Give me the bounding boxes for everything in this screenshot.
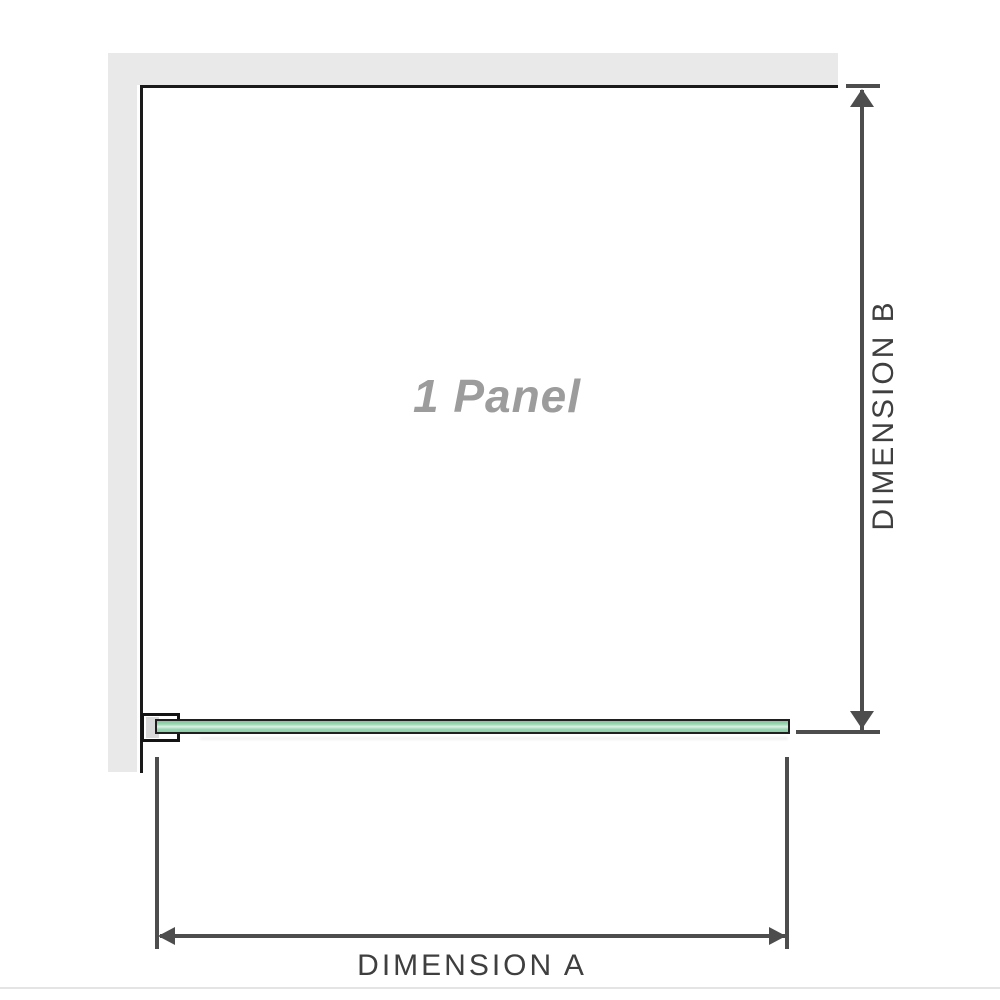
dimension-b-top-cap bbox=[846, 84, 880, 88]
wall-top bbox=[108, 53, 838, 85]
dimension-a-right-extension bbox=[785, 757, 789, 949]
dimension-a-label: DIMENSION A bbox=[357, 949, 587, 983]
dimension-a-line bbox=[160, 934, 786, 938]
panel-label: 1 Panel bbox=[413, 369, 581, 423]
panel-outline-left bbox=[140, 85, 143, 773]
wall-left bbox=[108, 53, 137, 772]
dimension-a-arrow-left-icon bbox=[158, 927, 175, 945]
shower-panel-diagram: 1 Panel DIMENSION B DIMENSION A bbox=[0, 0, 1000, 1000]
dimension-b-label: DIMENSION B bbox=[867, 299, 901, 530]
dimension-b-arrow-down-icon bbox=[850, 711, 874, 729]
panel-outline-top bbox=[140, 85, 838, 88]
dimension-b-line bbox=[860, 90, 864, 732]
glass-shadow bbox=[200, 737, 788, 740]
bottom-divider bbox=[0, 987, 1000, 989]
dimension-a-arrow-right-icon bbox=[769, 927, 786, 945]
dimension-a-left-extension bbox=[155, 757, 159, 949]
dimension-b-arrow-up-icon bbox=[850, 89, 874, 107]
dimension-b-bottom-cap bbox=[796, 730, 880, 734]
glass-panel bbox=[155, 719, 790, 734]
